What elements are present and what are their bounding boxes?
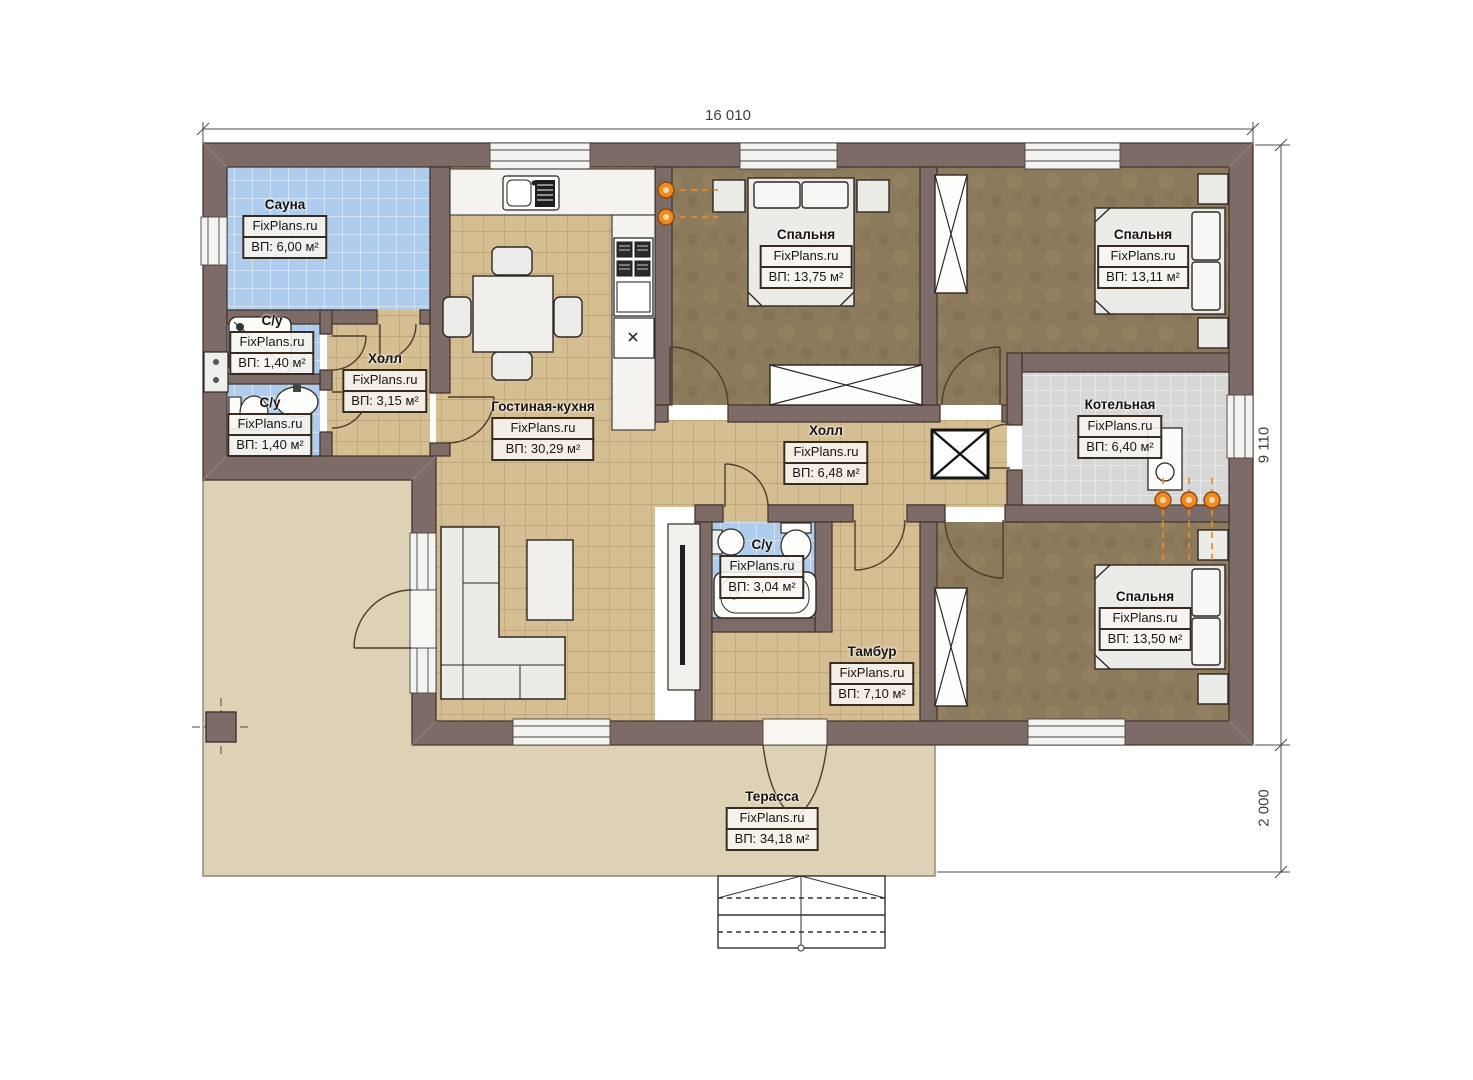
room-area: ВП: 6,00 м² xyxy=(242,236,327,259)
room-name: С/у xyxy=(229,314,314,329)
room-brand: FixPlans.ru xyxy=(783,441,868,464)
coffee-table-icon xyxy=(527,540,573,620)
room-brand: FixPlans.ru xyxy=(342,369,427,392)
room-brand: FixPlans.ru xyxy=(1099,607,1192,630)
window xyxy=(1028,719,1125,745)
room-area: ВП: 1,40 м² xyxy=(227,434,312,457)
window xyxy=(1025,143,1120,169)
tv-icon xyxy=(680,545,685,665)
room-name: Сауна xyxy=(242,198,327,213)
room-label-bedroom-1: Спальня FixPlans.ru ВП: 13,75 м² xyxy=(760,228,853,289)
room-name: Спальня xyxy=(1097,228,1189,243)
window xyxy=(490,143,590,169)
room-name: Холл xyxy=(783,424,868,439)
room-label-boiler-room: Котельная FixPlans.ru ВП: 6,40 м² xyxy=(1077,398,1162,459)
water-heater-icon xyxy=(204,352,228,392)
dimension-terrace-depth: 2 000 xyxy=(1256,789,1273,827)
room-name: Терасса xyxy=(726,790,819,805)
room-area: ВП: 13,50 м² xyxy=(1099,628,1192,651)
room-name: Спальня xyxy=(1099,590,1192,605)
nightstand-icon xyxy=(1198,674,1228,704)
wardrobe-icon xyxy=(935,175,967,293)
room-area: ВП: 3,15 м² xyxy=(342,390,427,413)
room-label-bedroom-3: Спальня FixPlans.ru ВП: 13,50 м² xyxy=(1099,590,1192,651)
room-label-sauna: Сауна FixPlans.ru ВП: 6,00 м² xyxy=(242,198,327,259)
room-area: ВП: 7,10 м² xyxy=(829,683,914,706)
room-label-tambour: Тамбур FixPlans.ru ВП: 7,10 м² xyxy=(829,645,914,706)
window xyxy=(410,533,436,590)
room-brand: FixPlans.ru xyxy=(1077,415,1162,438)
room-area: ВП: 1,40 м² xyxy=(229,352,314,375)
room-name: Спальня xyxy=(760,228,853,243)
vent-shaft-icon xyxy=(932,430,988,478)
window xyxy=(740,143,837,169)
appliance-icon xyxy=(614,318,654,358)
room-label-terrace: Терасса FixPlans.ru ВП: 34,18 м² xyxy=(726,790,819,851)
dimension-line-top xyxy=(197,122,1259,143)
nightstand-icon xyxy=(857,180,889,212)
window xyxy=(201,217,227,265)
floor-plan-page: Сауна FixPlans.ru ВП: 6,00 м² С/у FixPla… xyxy=(0,0,1473,1080)
room-brand: FixPlans.ru xyxy=(491,417,594,440)
room-area: ВП: 6,40 м² xyxy=(1077,436,1162,459)
dimension-top-width: 16 010 xyxy=(705,107,751,124)
room-name: Холл xyxy=(342,352,427,367)
dimension-right-height: 9 110 xyxy=(1256,427,1273,463)
wardrobe-icon xyxy=(935,588,967,706)
room-label-hall-small: Холл FixPlans.ru ВП: 3,15 м² xyxy=(342,352,427,413)
sink-icon xyxy=(503,176,559,210)
tv-stand-icon xyxy=(668,524,700,690)
stairs-icon xyxy=(718,876,885,951)
room-label-wc-top: С/у FixPlans.ru ВП: 1,40 м² xyxy=(229,314,314,375)
room-brand: FixPlans.ru xyxy=(229,331,314,354)
room-area: ВП: 13,75 м² xyxy=(760,266,853,289)
room-brand: FixPlans.ru xyxy=(227,413,312,436)
room-name: Тамбур xyxy=(829,645,914,660)
nightstand-icon xyxy=(1198,318,1228,348)
room-label-wc-bottom: С/у FixPlans.ru ВП: 1,40 м² xyxy=(227,396,312,457)
room-area: ВП: 13,11 м² xyxy=(1097,266,1189,289)
room-brand: FixPlans.ru xyxy=(1097,245,1189,268)
room-brand: FixPlans.ru xyxy=(760,245,853,268)
room-area: ВП: 34,18 м² xyxy=(726,828,819,851)
nightstand-icon xyxy=(713,180,745,212)
room-label-bedroom-2: Спальня FixPlans.ru ВП: 13,11 м² xyxy=(1097,228,1189,289)
room-brand: FixPlans.ru xyxy=(719,555,804,578)
stove-icon xyxy=(614,238,653,316)
room-area: ВП: 3,04 м² xyxy=(719,576,804,599)
room-label-wc-center: С/у FixPlans.ru ВП: 3,04 м² xyxy=(719,538,804,599)
room-brand: FixPlans.ru xyxy=(242,215,327,238)
window xyxy=(1227,395,1253,458)
room-brand: FixPlans.ru xyxy=(726,807,819,830)
room-name: С/у xyxy=(719,538,804,553)
room-area: ВП: 30,29 м² xyxy=(491,438,594,461)
room-name: Гостиная-кухня xyxy=(491,400,594,415)
nightstand-icon xyxy=(1198,174,1228,204)
wardrobe-icon xyxy=(770,365,922,405)
room-name: Котельная xyxy=(1077,398,1162,413)
window xyxy=(410,648,436,693)
room-area: ВП: 6,48 м² xyxy=(783,462,868,485)
window xyxy=(513,719,610,745)
room-label-hall-center: Холл FixPlans.ru ВП: 6,48 м² xyxy=(783,424,868,485)
room-brand: FixPlans.ru xyxy=(829,662,914,685)
room-label-living-kitchen: Гостиная-кухня FixPlans.ru ВП: 30,29 м² xyxy=(491,400,594,461)
room-name: С/у xyxy=(227,396,312,411)
